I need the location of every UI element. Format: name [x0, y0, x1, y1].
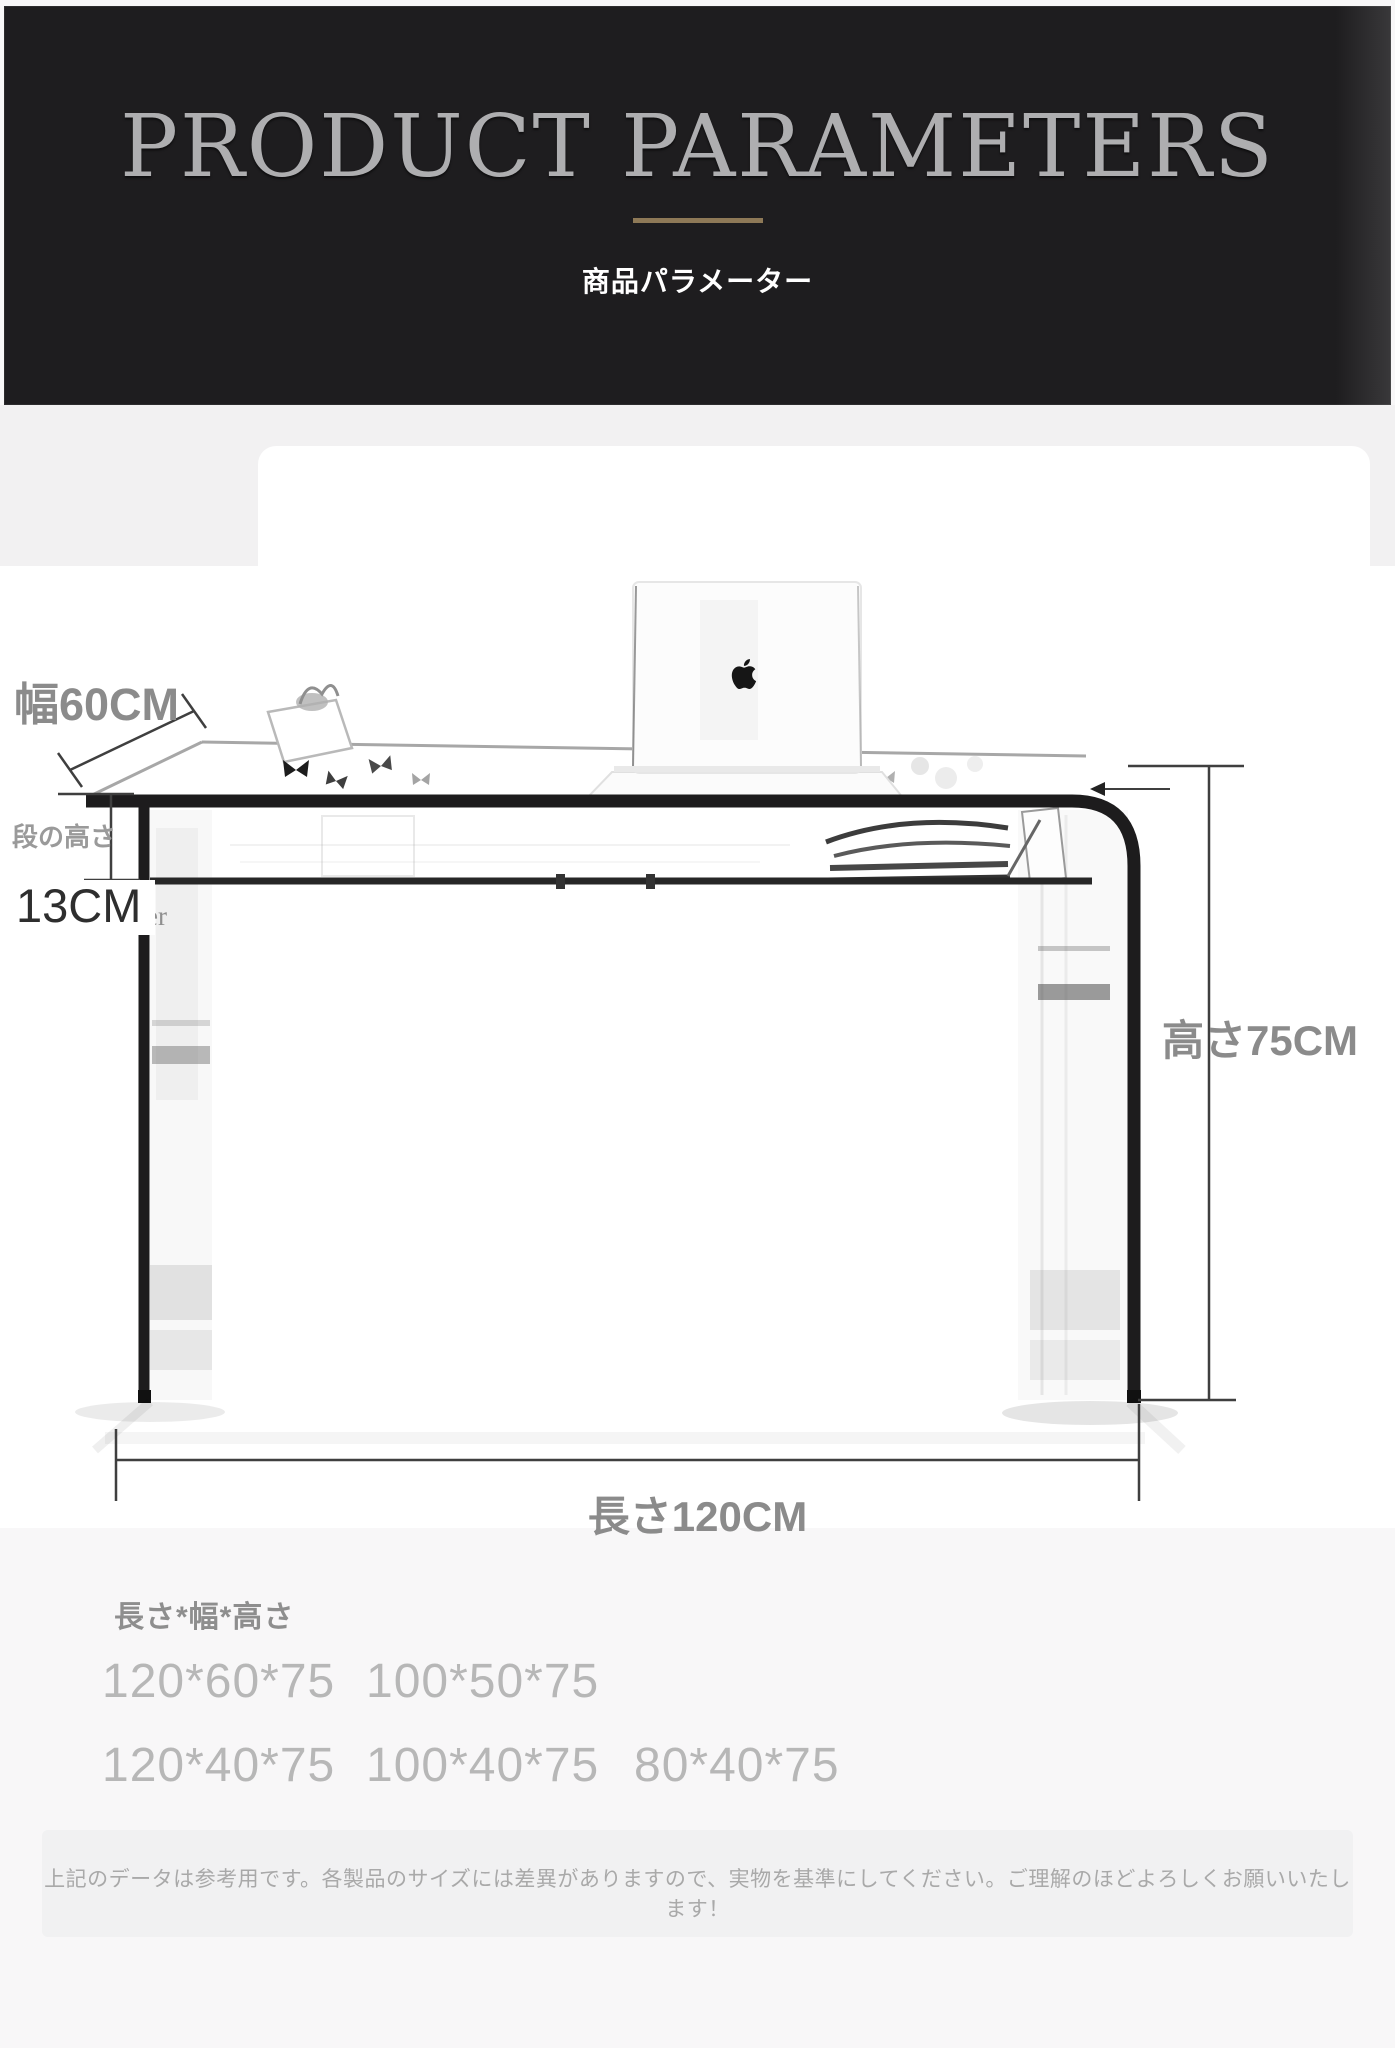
step-height-caption: 段の高さ [12, 824, 116, 850]
size-option: 100*50*75 [366, 1658, 599, 1706]
size-option: 100*40*75 [366, 1742, 599, 1790]
page-subtitle: 商品パラメーター [4, 260, 1391, 300]
books [826, 808, 1066, 882]
disclaimer-box: 上記のデータは参考用です。各製品のサイズには差異がありますので、実物を基準にして… [42, 1830, 1353, 1937]
desk-top-edges [88, 742, 1086, 876]
width-dimension-label: 幅60CM [14, 682, 179, 727]
product-parameters-page: PRODUCT PARAMETERS 商品パラメーター er [0, 0, 1395, 2048]
height-dimension-label: 高さ75CM [1162, 1020, 1358, 1062]
gold-divider [633, 218, 763, 223]
tissue-box [268, 685, 352, 762]
floor-shadow [75, 1401, 1182, 1450]
desk-outline [86, 801, 1141, 1403]
size-option: 120*60*75 [102, 1658, 335, 1706]
page-header: PRODUCT PARAMETERS 商品パラメーター [4, 6, 1391, 405]
disclaimer-text: 上記のデータは参考用です。各製品のサイズには差異がありますので、実物を基準にして… [42, 1830, 1353, 1923]
laptop [586, 582, 904, 799]
size-option: 120*40*75 [102, 1742, 335, 1790]
glass-panes: er [146, 810, 1128, 1400]
length-dimension-label: 長さ120CM [0, 1496, 1395, 1538]
sizes-heading: 長さ*幅*高さ [114, 1592, 294, 1636]
step-height-value: 13CM [10, 880, 155, 935]
size-option: 80*40*75 [634, 1742, 840, 1790]
page-title: PRODUCT PARAMETERS [4, 104, 1391, 190]
desk-illustration: er [0, 420, 1395, 1530]
